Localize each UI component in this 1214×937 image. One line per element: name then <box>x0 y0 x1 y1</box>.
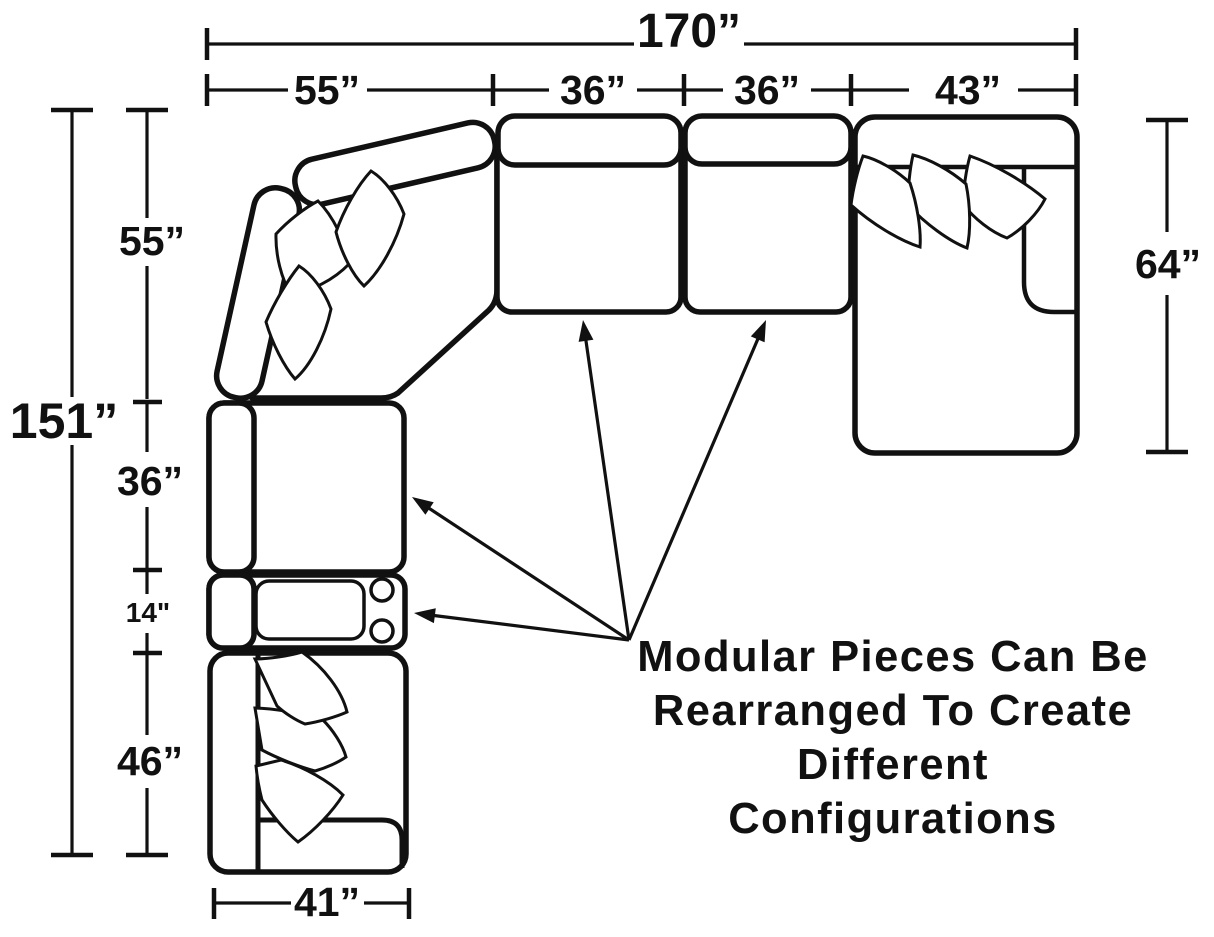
svg-text:170”: 170” <box>637 5 741 58</box>
svg-text:36”: 36” <box>117 458 183 504</box>
svg-text:43”: 43” <box>935 67 1001 113</box>
svg-text:Configurations: Configurations <box>728 795 1058 843</box>
svg-text:Modular Pieces Can Be: Modular Pieces Can Be <box>637 633 1149 681</box>
svg-text:36”: 36” <box>734 67 800 113</box>
svg-text:41”: 41” <box>294 879 360 925</box>
svg-text:55”: 55” <box>294 67 360 113</box>
svg-text:Rearranged To Create: Rearranged To Create <box>653 687 1133 735</box>
svg-text:55”: 55” <box>119 218 185 264</box>
svg-text:Different: Different <box>797 741 989 789</box>
svg-text:36”: 36” <box>560 67 626 113</box>
svg-text:14": 14" <box>126 597 170 628</box>
svg-text:151”: 151” <box>10 393 118 449</box>
svg-text:46”: 46” <box>117 738 183 784</box>
svg-text:64”: 64” <box>1135 241 1201 287</box>
